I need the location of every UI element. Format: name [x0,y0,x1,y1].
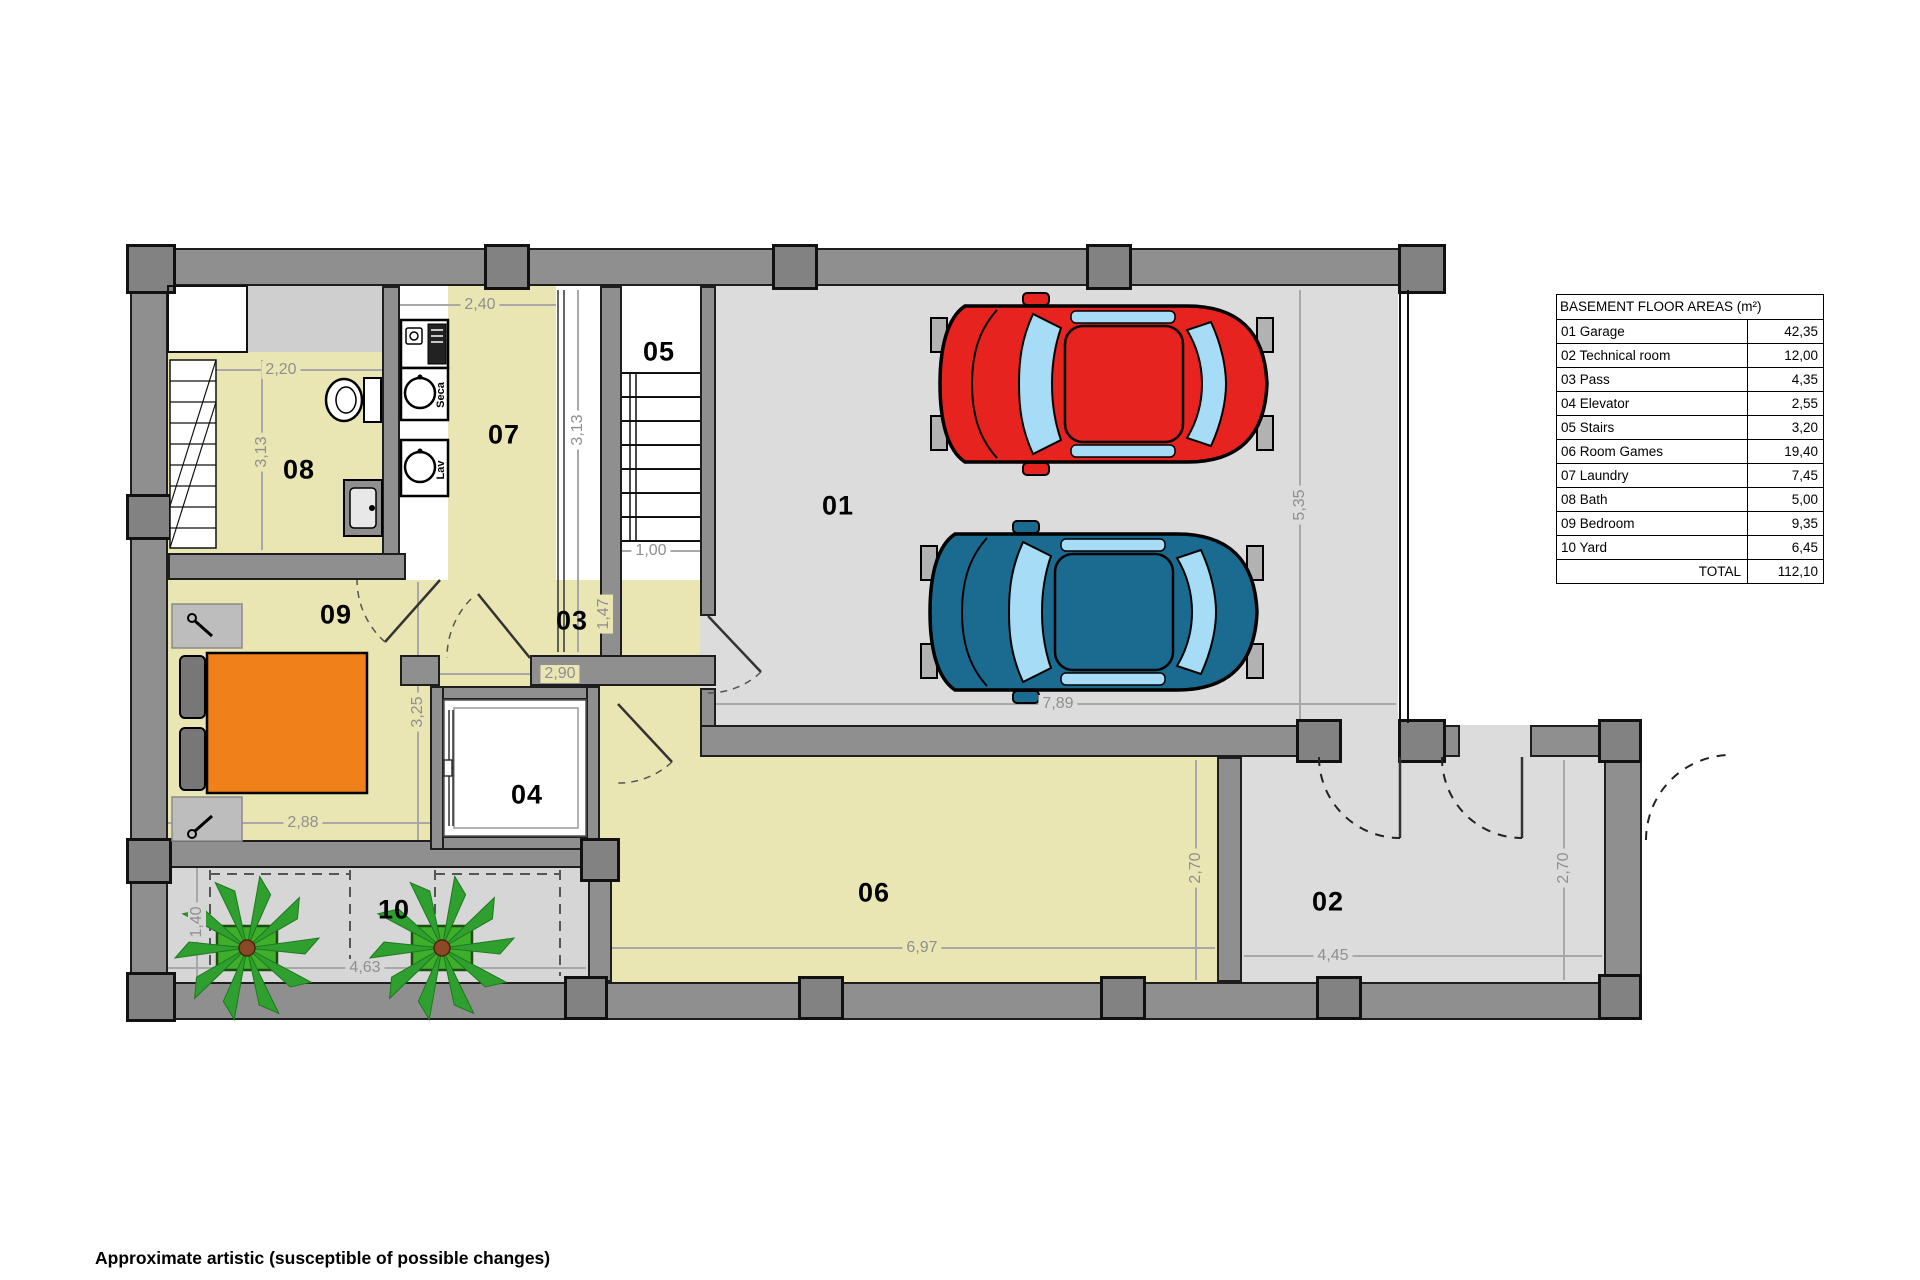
dim-line-laundry-right [577,290,579,652]
elevator-shaft-top [430,686,600,700]
pillar-technical-top-right [1598,719,1642,763]
table-row: 03 Pass4,35 [1557,367,1823,391]
dim-garage-width: 7,89 [1038,695,1077,713]
table-row: 01 Garage42,35 [1557,319,1823,343]
dim-technical-height: 2,70 [1555,848,1573,887]
pillar-top-right [1398,244,1446,294]
wall-pass-a [400,655,440,686]
entry-door-gap-floor [1460,725,1530,757]
room-label-technical: 02 [1312,887,1344,918]
pillar-yard-games [580,838,620,882]
bath-floor [168,352,382,553]
dim-games-height: 2,70 [1187,848,1205,887]
dim-line-technical-width [1244,955,1602,957]
pillar-bottom-3 [1100,976,1146,1020]
table-row: 08 Bath5,00 [1557,487,1823,511]
dim-stairs-exit: 1,00 [631,542,670,560]
pillar-left-2 [126,838,172,884]
dim-bedroom-height: 3,25 [409,692,427,731]
dryer-label: Seca [435,382,447,408]
pillar-top-2 [772,244,818,290]
wall-garage-bottom-c [1530,725,1604,757]
pass-lower-floor [600,686,716,757]
wall-garage-bottom-a [700,725,1340,757]
table-row: 06 Room Games19,40 [1557,439,1823,463]
floor-plan-page: 01 02 03 04 05 06 07 08 09 10 Seca Lav 2… [0,0,1920,1280]
table-total-row: TOTAL112,10 [1557,559,1823,583]
elevator-shaft-bottom [430,836,600,850]
garage-fence-wall [1400,290,1408,723]
dim-games-width: 6,97 [902,939,941,957]
room-label-laundry: 07 [488,420,520,451]
washer-label: Lav [435,461,447,480]
elevator-shaft-left [430,686,444,850]
areas-table: BASEMENT FLOOR AREAS (m²) 01 Garage42,35… [1556,294,1824,584]
pillar-bottom-1 [564,976,608,1020]
pillar-bottom-left [126,972,176,1022]
pillar-bottom-4 [1316,976,1362,1020]
dim-laundry-right: 3,13 [569,410,587,449]
closet-floor [168,286,247,352]
pillar-band-fence [1398,719,1446,763]
dim-pass-height: 1,47 [595,594,613,633]
pillar-top-1 [484,244,530,290]
room-label-garage: 01 [822,491,854,522]
pillar-bottom-right [1598,974,1642,1020]
table-row: 05 Stairs3,20 [1557,415,1823,439]
room-label-bath: 08 [283,455,315,486]
wall-bath-laundry [382,286,400,580]
table-row: 07 Laundry7,45 [1557,463,1823,487]
pillar-band-1 [1296,719,1342,763]
dim-pass-width: 2,90 [540,665,579,683]
door-exterior-right [1646,755,1731,840]
wall-bath-bedroom [168,553,406,580]
bedroom-floor [168,580,430,840]
dim-laundry-top: 2,40 [460,296,499,314]
dim-yard-height: 1,40 [188,902,206,941]
elevator-cab-icon [444,700,586,836]
areas-table-title: BASEMENT FLOOR AREAS (m²) [1557,295,1823,319]
dim-garage-height: 5,35 [1291,485,1309,524]
table-row: 02 Technical room12,00 [1557,343,1823,367]
caption: Approximate artistic (susceptible of pos… [95,1248,550,1269]
dim-technical-width: 4,45 [1313,947,1352,965]
technical-floor [1242,757,1604,982]
shower-strip-floor [247,286,382,356]
room-label-games: 06 [858,878,890,909]
room-label-pass: 03 [556,606,588,637]
room-label-stairs: 05 [643,337,675,368]
room-label-yard: 10 [378,895,410,926]
table-row: 04 Elevator2,55 [1557,391,1823,415]
room-label-elevator: 04 [511,780,543,811]
wall-bottom [130,982,1642,1020]
wall-garage-left-lower [700,688,716,728]
elevator-shaft-right [586,686,600,850]
pillar-bottom-2 [798,976,844,1020]
wall-garage-left-upper [700,286,716,616]
room-label-bedroom: 09 [320,600,352,631]
table-row: 09 Bedroom9,35 [1557,511,1823,535]
dim-yard-width: 4,63 [345,959,384,977]
pillar-top-3 [1086,244,1132,290]
pillar-left-1 [126,494,172,540]
dim-bedroom-width: 2,88 [283,814,322,832]
wall-left [130,248,168,1020]
pillar-top-left [126,244,176,294]
dim-bath-left: 3,13 [253,432,271,471]
table-row: 10 Yard6,45 [1557,535,1823,559]
garage-door-gap-floor [1340,725,1400,757]
wall-games-technical [1217,757,1242,982]
dim-bath-top: 2,20 [261,361,300,379]
